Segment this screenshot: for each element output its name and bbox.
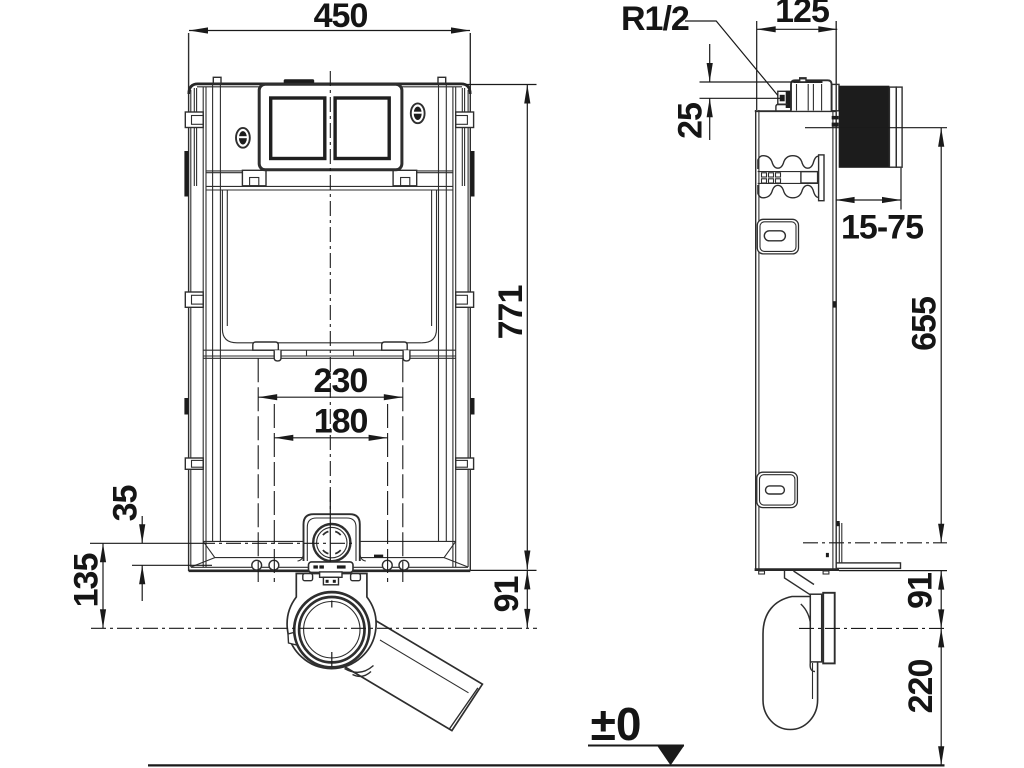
svg-text:771: 771 [492, 286, 530, 340]
svg-text:91: 91 [902, 573, 940, 609]
svg-text:230: 230 [314, 362, 368, 400]
svg-text:450: 450 [314, 0, 368, 35]
svg-text:655: 655 [906, 297, 944, 351]
svg-text:15-75: 15-75 [841, 208, 923, 246]
svg-text:R1/2: R1/2 [621, 0, 689, 38]
svg-text:91: 91 [488, 577, 526, 613]
svg-text:220: 220 [902, 660, 940, 714]
svg-text:125: 125 [775, 0, 829, 30]
svg-text:±0: ±0 [591, 698, 642, 750]
svg-text:135: 135 [68, 554, 106, 608]
svg-text:35: 35 [107, 486, 145, 522]
svg-text:180: 180 [314, 403, 368, 441]
svg-text:25: 25 [672, 103, 710, 139]
